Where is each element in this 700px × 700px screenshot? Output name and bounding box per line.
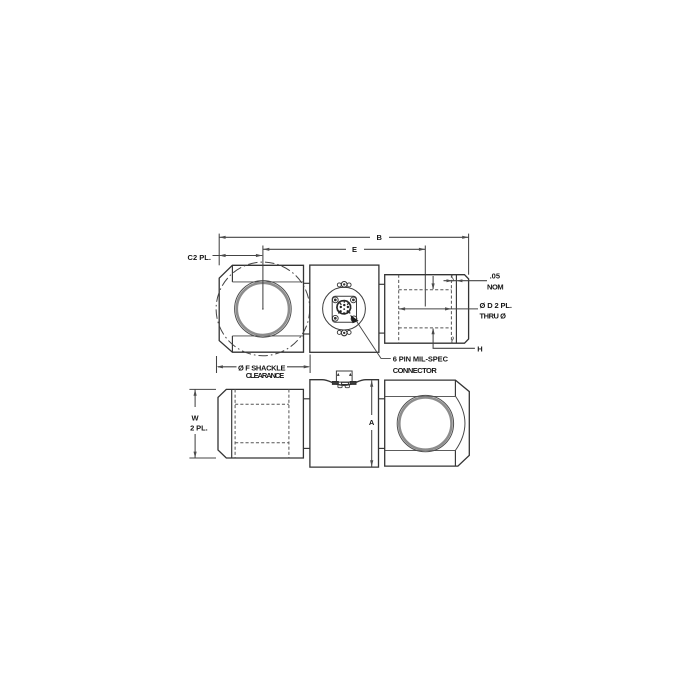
svg-text:B: B [376, 233, 382, 242]
svg-text:.05: .05 [490, 271, 500, 280]
svg-text:THRU Ø: THRU Ø [480, 311, 507, 320]
svg-text:NOM: NOM [487, 282, 504, 291]
svg-text:E: E [352, 245, 357, 254]
svg-text:C2 PL.: C2 PL. [188, 253, 212, 262]
svg-text:W: W [192, 413, 200, 422]
svg-text:6 PIN MIL-SPEC: 6 PIN MIL-SPEC [393, 355, 449, 364]
svg-text:CONNECTOR: CONNECTOR [393, 366, 438, 375]
svg-text:A: A [369, 418, 375, 427]
svg-text:CLEARANCE: CLEARANCE [246, 371, 285, 380]
svg-text:H: H [477, 345, 482, 354]
svg-text:Ø D 2 PL.: Ø D 2 PL. [480, 301, 513, 310]
svg-text:2 PL.: 2 PL. [190, 424, 208, 433]
